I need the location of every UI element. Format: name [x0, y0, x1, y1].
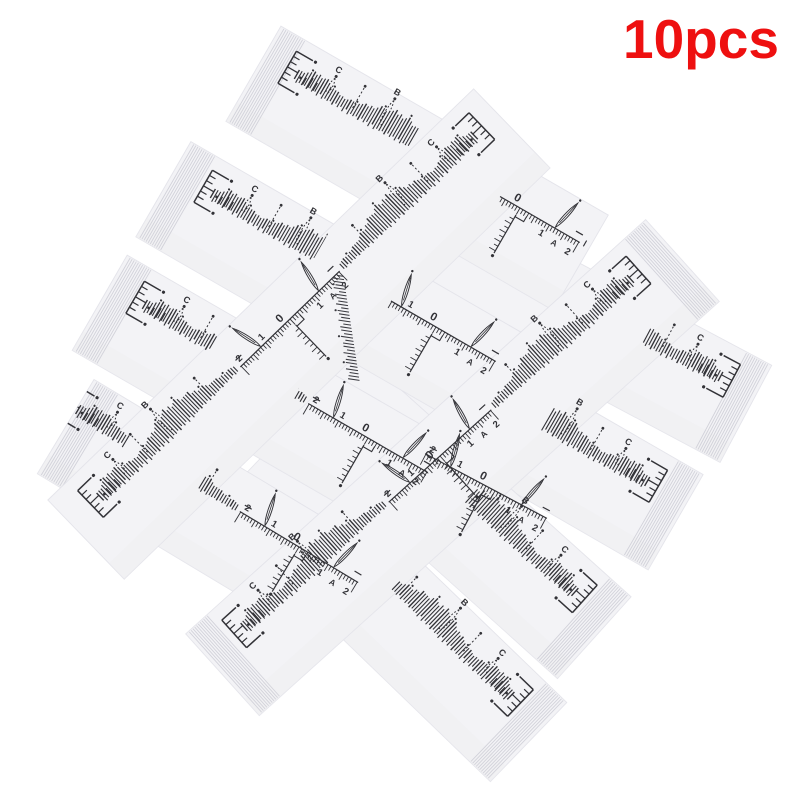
svg-text:10pcs: 10pcs: [623, 8, 779, 70]
